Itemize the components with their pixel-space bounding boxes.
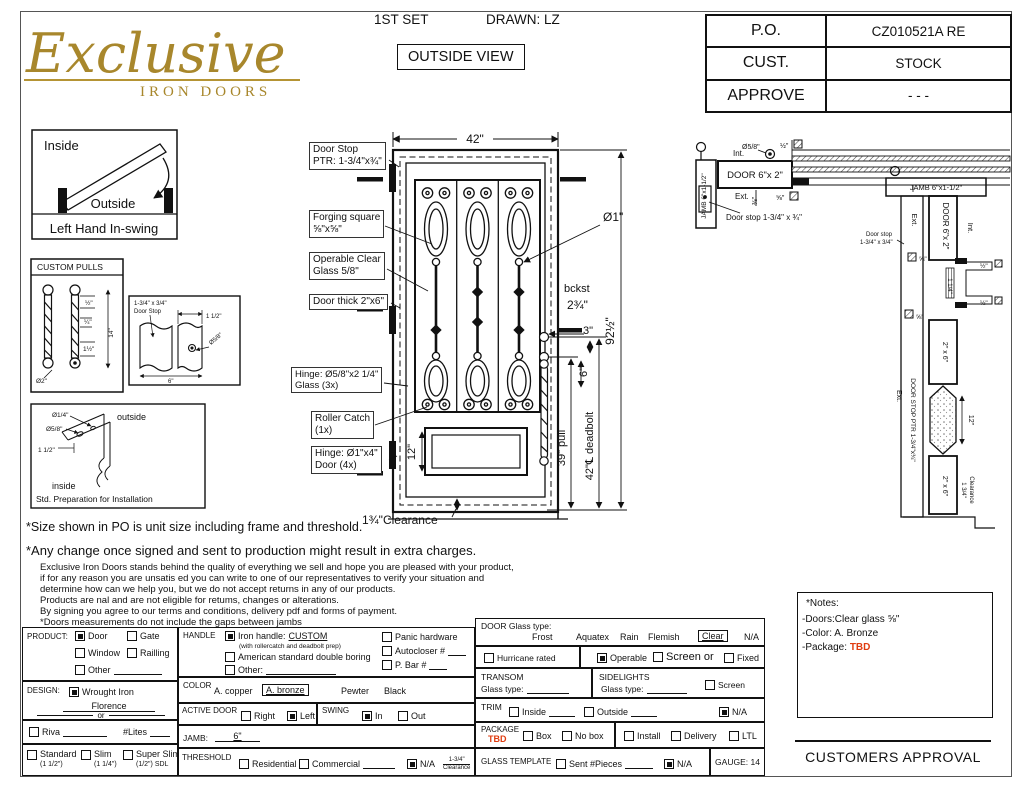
prep-caption: Std. Preparation for Installation (36, 494, 153, 504)
option-label: Out (411, 711, 426, 721)
checkbox-icon[interactable] (664, 759, 674, 769)
checkbox-icon[interactable] (127, 648, 137, 658)
glass-flemish-option[interactable]: Flemish (648, 632, 680, 642)
threshold-note-top: 1-3/4" (443, 757, 470, 765)
color-pewter-option[interactable]: Pewter (341, 686, 369, 696)
dim-dia2: Ø2" (36, 378, 48, 385)
callout-operable-glass: Operable Clear Glass 5/8" (309, 252, 385, 280)
checkbox-slim[interactable]: Slim(1 1/4") (81, 750, 117, 769)
checkbox-swing-out[interactable]: Out (398, 711, 426, 721)
blank-line[interactable] (527, 685, 569, 694)
checkbox-icon[interactable] (29, 727, 39, 737)
option-label: Outside (597, 707, 628, 717)
handle-label: HANDLE (183, 631, 215, 640)
option-label: Frost (532, 632, 553, 642)
sectionv-half1: ½" (980, 262, 988, 270)
option-label: Standard (40, 749, 77, 759)
stop-name-label: Door Stop (134, 309, 162, 315)
option-label: Hurricane rated (497, 653, 556, 663)
sectionv-fe1: ⅝" (919, 256, 927, 263)
po-value: CZ010521A RE (826, 15, 1011, 47)
color-cell: COLOR A. copper A. bronze Pewter Black (178, 677, 475, 703)
jamb-label: JAMB: (183, 733, 208, 743)
checkbox-icon[interactable] (239, 759, 249, 769)
sectionv-fe2: ⅝" (916, 314, 924, 321)
dim-1half: 1½" (83, 345, 95, 353)
option-label: Operable (610, 653, 647, 663)
checkbox-trim-inside[interactable]: Inside (509, 707, 575, 717)
checkbox-autocloser[interactable]: Autocloser # (382, 646, 466, 656)
option-label: Inside (522, 707, 546, 717)
checkbox-riva[interactable]: Riva (29, 727, 107, 737)
blank-line[interactable] (114, 666, 162, 675)
handle-cell: HANDLE Iron handle:CUSTOM (with rollerca… (178, 627, 475, 677)
product-cell: PRODUCT: Door Gate Window Railling Other (22, 627, 178, 681)
checkbox-icon[interactable] (81, 750, 91, 760)
sectionv-stop1: Door stop (866, 232, 893, 238)
checkbox-icon[interactable] (719, 707, 729, 717)
checkbox-install[interactable]: Install (624, 731, 661, 741)
custom-pulls-title: CUSTOM PULLS (37, 262, 103, 272)
option-label: Window (88, 648, 120, 658)
trim-cell: TRIM Inside Outside N/A (475, 698, 765, 722)
checkbox-ltl[interactable]: LTL (729, 731, 757, 741)
notes-title: *Notes: (806, 598, 839, 609)
option-label: Black (384, 686, 406, 696)
disclaimer-small5: By signing you agree to our terms and co… (26, 606, 686, 617)
sectionh-jamb-label: JAMB 6"x1-1/2" (701, 173, 708, 219)
checkbox-icon[interactable] (724, 653, 734, 663)
checkbox-icon[interactable] (382, 632, 392, 642)
disclaimer-small4: Products are nal and are not eligible fo… (26, 595, 686, 606)
checkbox-wrought-iron[interactable]: Wrought Iron (69, 687, 134, 697)
checkbox-icon[interactable] (225, 631, 235, 641)
dim-3: 3" (583, 325, 593, 337)
sidelights-label: SIDELIGHTS (599, 672, 650, 682)
sectionh-door-label: DOOR 6"x 2" (727, 170, 783, 181)
color-black-option[interactable]: Black (384, 686, 406, 696)
option-label: Right (254, 711, 275, 721)
stop-dim3: 6" (168, 379, 173, 385)
option-label: Install (637, 731, 661, 741)
color-copper-option[interactable]: A. copper (214, 686, 253, 696)
checkbox-delivery[interactable]: Delivery (671, 731, 717, 741)
checkbox-icon[interactable] (123, 750, 133, 760)
callout-hinge-door: Hinge: Ø1"x4" Door (4x) (311, 446, 382, 474)
option-label: N/A (420, 759, 435, 769)
callout-door-thick: Door thick 2"x6" (309, 294, 388, 310)
jamb-cell: JAMB: 6" (178, 725, 475, 748)
sidelights-glass-field[interactable]: Glass type: (601, 684, 687, 694)
option-label: Left (300, 711, 315, 721)
operable-cell: Operable Screen or Fixed (580, 646, 765, 668)
checkbox-icon[interactable] (671, 731, 681, 741)
callout-roller-catch: Roller Catch (1x) (311, 411, 374, 439)
pull-dim: 39" pull (556, 430, 568, 466)
prep-dim1: Ø1/4" (52, 412, 69, 419)
blank-line[interactable] (150, 728, 170, 737)
option-label: Glass type: (481, 684, 524, 694)
dim-14: 14" (108, 328, 115, 338)
option-label: Sent #Pieces (569, 759, 622, 769)
sectionv-doorstop-ptr: DOOR STOP PTR 1-3/4"x¾" (909, 378, 916, 462)
sectionv-clr2: Clearance (968, 476, 974, 504)
option-label: A. copper (214, 686, 253, 696)
option-label: Commercial (312, 759, 360, 769)
option-label: Rain (620, 632, 639, 642)
glass-template-label: GLASS TEMPLATE (481, 757, 551, 766)
package-cell: PACKAGE TBD Box No box (475, 722, 615, 748)
disclaimer-small1: Exclusive Iron Doors stands behind the q… (26, 562, 686, 573)
checkbox-door[interactable]: Door (75, 631, 108, 641)
active-door-label: ACTIVE DOOR (182, 706, 237, 715)
option-label: P. Bar # (395, 660, 426, 670)
swing-diagram: Inside Outside Left Hand In-swing (31, 129, 179, 241)
option-label: Clear (702, 631, 724, 641)
checkbox-icon[interactable] (705, 680, 715, 690)
blank-line[interactable] (363, 760, 395, 769)
stop-dim1: 1 1/2" (206, 314, 221, 320)
checkbox-icon[interactable] (398, 711, 408, 721)
outside-view-label: OUTSIDE VIEW (397, 44, 525, 70)
checkbox-gate[interactable]: Gate (127, 631, 160, 641)
checkbox-icon[interactable] (225, 665, 235, 675)
checkbox-icon[interactable] (127, 631, 137, 641)
option-label: Gate (140, 631, 160, 641)
handle-note: (with rollercatch and deadbolt prep) (239, 643, 341, 650)
option-label: Screen (718, 680, 745, 690)
glass-na-option[interactable]: N/A (744, 632, 759, 642)
doorstop-detail-box: 1-3/4" x 3/4" Door Stop 1 1/2" Ø5/8" 6" (128, 295, 241, 386)
sectionh-fe: ⅝" (776, 195, 785, 202)
checkbox-template-na[interactable]: N/A (664, 759, 692, 769)
checkbox-pbar[interactable]: P. Bar # (382, 660, 447, 670)
color-bronze-option-selected[interactable]: A. bronze (262, 684, 309, 696)
door-drawing: 42" (280, 125, 700, 537)
checkbox-icon[interactable] (624, 731, 634, 741)
checkbox-active-left[interactable]: Left (287, 711, 315, 721)
swing-caption: Left Hand In-swing (50, 221, 158, 236)
disclaimer-small3: determine how can we help you, but we do… (26, 584, 686, 595)
prep-outside-label: outside (117, 412, 146, 422)
riva-cell: Riva #Lites (22, 720, 178, 744)
transom-glass-field[interactable]: Glass type: (481, 684, 569, 694)
glass-rain-option[interactable]: Rain (620, 632, 639, 642)
checkbox-icon[interactable] (729, 731, 739, 741)
checkbox-other-product[interactable]: Other (75, 665, 162, 675)
glass-clear-option-selected[interactable]: Clear (698, 630, 728, 642)
bckst-label: bckst (564, 283, 590, 295)
option-label: Screen or (666, 651, 714, 663)
sectionv-2x6-upper: 2" x 6" (941, 342, 948, 363)
delivery-cell: Install Delivery LTL (615, 722, 765, 748)
option-label: LTL (742, 731, 757, 741)
blank-line[interactable] (429, 661, 447, 670)
disclaimer-line1: *Size shown in PO is unit size including… (26, 520, 686, 534)
checkbox-icon[interactable] (382, 646, 392, 656)
threshold-note-bottom: Clearance (443, 765, 470, 772)
active-door-cell: ACTIVE DOOR Right Left (178, 703, 317, 725)
option-label: In (375, 711, 383, 721)
design-value-text: Florence (91, 701, 126, 711)
or-label: or (97, 711, 104, 720)
checkbox-icon[interactable] (299, 759, 309, 769)
sidelights-cell: SIDELIGHTS Glass type: Screen (592, 668, 765, 698)
checkbox-swing-in[interactable]: In (362, 711, 383, 721)
option-label: Super Slim (136, 749, 180, 759)
cust-label: CUST. (706, 47, 826, 79)
checkbox-icon[interactable] (75, 665, 85, 675)
door-width-dim: 42" (466, 132, 484, 146)
lites-field[interactable]: #Lites (123, 727, 170, 737)
blank-line[interactable] (63, 728, 107, 737)
logo: Exclusive IRON DOORS (24, 28, 300, 101)
option-label: Box (536, 731, 552, 741)
sectionh-dia58: Ø5/8" (742, 144, 760, 151)
checkbox-railling[interactable]: Railling (127, 648, 170, 658)
callout-door-stop: Door Stop PTR: 1-3/4"x¾" (309, 142, 386, 170)
sectionv-2x6-lower: 2" x 6" (941, 476, 948, 497)
option-sublabel: (1 1/2") (40, 761, 63, 768)
option-label: Panic hardware (395, 632, 458, 642)
option-label: Other (88, 665, 111, 675)
checkbox-sent-pieces[interactable]: Sent #Pieces (556, 759, 653, 769)
checkbox-screen-or[interactable]: Screen or (653, 651, 714, 663)
notes-package-value: TBD (850, 642, 871, 653)
checkbox-nobox[interactable]: No box (562, 731, 604, 741)
divider-line (109, 715, 165, 716)
prep-dim2: Ø5/8" (46, 426, 63, 433)
option-label: Autocloser # (395, 646, 445, 656)
checkbox-threshold-na[interactable]: N/A (407, 759, 435, 769)
dim-quarter: ¼" (84, 319, 92, 326)
design-label: DESIGN: (27, 686, 60, 695)
prep-dim3: 1 1/2" (38, 447, 55, 454)
checkbox-super-slim[interactable]: Super Slim(1/2") SDL (123, 750, 180, 769)
glass-type-cell: DOOR Glass type: Frost Aquatex Rain Flem… (475, 618, 765, 646)
glass-type-label: DOOR Glass type: (481, 621, 551, 631)
checkbox-icon[interactable] (523, 731, 533, 741)
blank-line[interactable] (266, 666, 336, 675)
dia1-label: Ø1" (603, 210, 623, 224)
sectionv-jamb-label: JAMB 6"x1-1/2" (910, 183, 963, 192)
option-label: Railling (140, 648, 170, 658)
std-prep-box: Ø1/4" Ø5/8" 1 1/2" outside inside Std. P… (30, 403, 206, 509)
callout-hinge-glass: Hinge: Ø5/8"x2 1/4" Glass (3x) (291, 367, 382, 393)
checkbox-american-boring[interactable]: American standard double boring (225, 652, 371, 662)
deadbolt-dim: 42"℄ deadbolt (584, 412, 596, 480)
checkbox-icon[interactable] (584, 707, 594, 717)
option-label: Slim (94, 749, 112, 759)
option-label: N/A (732, 707, 747, 717)
approve-value: - - - (826, 80, 1011, 112)
blank-line[interactable] (625, 760, 653, 769)
option-label: Flemish (648, 632, 680, 642)
package-label: PACKAGE (481, 725, 519, 734)
checkbox-icon[interactable] (556, 759, 566, 769)
glass-aquatex-option[interactable]: Aquatex (576, 632, 609, 642)
option-label: Door (88, 631, 108, 641)
swing-inside-label: Inside (44, 138, 79, 153)
checkbox-icon[interactable] (382, 660, 392, 670)
trim-label: TRIM (481, 702, 502, 712)
option-label: A. bronze (266, 685, 305, 695)
checkbox-standard[interactable]: Standard(1 1/2") (27, 750, 77, 769)
dim-6: 6" (578, 367, 590, 377)
glass-frost-option[interactable]: Frost (532, 632, 553, 642)
swing-outside-label: Outside (91, 196, 136, 211)
checkbox-trim-outside[interactable]: Outside (584, 707, 657, 717)
hurricane-cell: Hurricane rated (475, 646, 580, 668)
option-label: Delivery (684, 731, 717, 741)
checkbox-icon[interactable] (509, 707, 519, 717)
jamb-value-text: 6" (233, 731, 241, 741)
sectionv-stop2: 1-3/4" x 3/4" (860, 240, 893, 246)
design-cell: DESIGN: Wrought Iron Florence or (22, 681, 178, 720)
checkbox-icon[interactable] (75, 648, 85, 658)
panel-dim-12: 12" (406, 444, 418, 460)
option-label: Residential (252, 759, 297, 769)
set-label: 1ST SET (374, 12, 429, 27)
checkbox-box[interactable]: Box (523, 731, 552, 741)
checkbox-icon[interactable] (75, 631, 85, 641)
checkbox-icon[interactable] (562, 731, 572, 741)
sectionv-clr1: 1 3/4" (960, 482, 966, 497)
option-label: Iron handle: (238, 631, 286, 641)
blank-line[interactable] (549, 708, 575, 717)
checkbox-commercial[interactable]: Commercial (299, 759, 395, 769)
option-label: Riva (42, 727, 60, 737)
checkbox-handle-other[interactable]: Other: (225, 665, 336, 675)
checkbox-icon[interactable] (69, 687, 79, 697)
option-label: American standard double boring (238, 652, 371, 662)
customers-approval[interactable]: CUSTOMERS APPROVAL (795, 740, 991, 765)
checkbox-active-right[interactable]: Right (241, 711, 275, 721)
notes-package-line: -Package: TBD (802, 642, 870, 653)
checkbox-icon[interactable] (407, 759, 417, 769)
jamb-value[interactable]: 6" (215, 731, 260, 742)
option-label: #Lites (123, 727, 147, 737)
checkbox-icon[interactable] (484, 653, 494, 663)
checkbox-residential[interactable]: Residential (239, 759, 297, 769)
prep-inside-label: inside (52, 481, 76, 491)
logo-subtitle: IRON DOORS (140, 84, 300, 101)
transom-cell: TRANSOM Glass type: (475, 668, 592, 698)
option-sublabel: (1 1/4") (94, 761, 117, 768)
notes-package-label: -Package: (802, 642, 850, 653)
product-label: PRODUCT: (27, 632, 68, 641)
option-label: Other: (238, 665, 263, 675)
option-label: N/A (677, 759, 692, 769)
checkbox-icon[interactable] (597, 653, 607, 663)
threshold-cell: THRESHOLD Residential Commercial N/A 1-3… (178, 748, 475, 776)
or-divider: or (37, 711, 165, 720)
checkbox-icon[interactable] (241, 711, 251, 721)
sectionv-int: Int. (966, 223, 975, 233)
checkbox-operable[interactable]: Operable (597, 653, 647, 663)
checkbox-icon[interactable] (653, 652, 663, 662)
divider-line (37, 715, 93, 716)
gauge-value: GAUGE: 14 (715, 757, 760, 767)
checkbox-icon[interactable] (287, 711, 297, 721)
logo-script: Exclusive (24, 28, 300, 81)
option-label: Wrought Iron (82, 687, 134, 697)
sectionv-12: 12" (967, 415, 974, 426)
sectionv-ext2: Ext. (895, 390, 902, 402)
sectionh-te: ⅜" (752, 196, 759, 205)
sectionv-door-label: DOOR 6"x 2" (941, 202, 950, 249)
notes-box: *Notes: -Doors:Clear glass ⅝" -Color: A.… (797, 592, 993, 718)
option-label: Glass type: (601, 684, 644, 694)
blank-line[interactable] (647, 685, 687, 694)
disclaimer-small2: if for any reason you are unsatis ed you… (26, 573, 686, 584)
checkbox-icon[interactable] (362, 711, 372, 721)
cust-value: STOCK (826, 47, 1011, 79)
sectionv-ext1: Ext. (910, 214, 919, 227)
disclaimer-line2: *Any change once signed and sent to prod… (26, 543, 686, 558)
checkbox-panic[interactable]: Panic hardware (382, 632, 458, 642)
disclaimer: *Size shown in PO is unit size including… (26, 520, 686, 628)
gauge-cell: GAUGE: 14 (710, 748, 765, 776)
checkbox-fixed[interactable]: Fixed (724, 653, 759, 663)
option-label: Pewter (341, 686, 369, 696)
swing-label: SWING (322, 706, 349, 715)
checkbox-iron-handle[interactable]: Iron handle:CUSTOM (225, 631, 327, 641)
approve-label: APPROVE (706, 80, 826, 112)
sectionh-half: ½" (780, 142, 789, 150)
checkbox-sidelights-screen[interactable]: Screen (705, 680, 745, 690)
bckst-dim: 2¾" (567, 298, 588, 312)
drawn-label: DRAWN: LZ (486, 12, 560, 27)
option-label: Fixed (737, 653, 759, 663)
sectionv-oq: 1 1/4" (946, 278, 952, 293)
blank-line[interactable] (631, 708, 657, 717)
glass-template-cell: GLASS TEMPLATE Sent #Pieces N/A (475, 748, 710, 776)
color-label: COLOR (183, 681, 211, 690)
jamb-section-vertical: JAMB 6"x1-1/2" Ext. DOOR 6"x 2" Int. Doo… (855, 140, 1020, 545)
swing-cell: SWING In Out (317, 703, 475, 725)
transom-label: TRANSOM (481, 672, 524, 682)
notes-line1: -Doors:Clear glass ⅝" (802, 614, 899, 625)
door-height-dim: 92½" (603, 317, 617, 345)
sectionh-stop-label: Door stop 1-3/4" x ¾" (726, 213, 802, 222)
option-sublabel: (1/2") SDL (136, 761, 168, 768)
package-tbd-value: TBD (488, 734, 507, 744)
stop-size-label: 1-3/4" x 3/4" (134, 301, 167, 307)
custom-pulls-box: CUSTOM PULLS ½" ¼" 1½" 14" Ø2" (30, 258, 124, 393)
checkbox-window[interactable]: Window (75, 648, 120, 658)
checkbox-trim-na[interactable]: N/A (719, 707, 747, 717)
handle-custom-value: CUSTOM (289, 631, 328, 641)
po-table: P.O. CZ010521A RE CUST. STOCK APPROVE - … (705, 14, 1012, 113)
stop-dim2: Ø5/8" (208, 332, 223, 346)
checkbox-hurricane[interactable]: Hurricane rated (484, 653, 556, 663)
dim-half: ½" (85, 299, 93, 307)
threshold-label: THRESHOLD (182, 753, 231, 762)
sectionh-ext-label: Ext. (735, 192, 749, 201)
option-label: N/A (744, 632, 759, 642)
option-label: No box (575, 731, 604, 741)
po-label: P.O. (706, 15, 826, 47)
callout-forging-square: Forging square ⅝"x⅝" (309, 210, 384, 238)
threshold-note: 1-3/4"Clearance (443, 757, 470, 771)
blank-line[interactable] (448, 647, 466, 656)
notes-line2: -Color: A. Bronze (802, 628, 878, 639)
frame-style-cell: Standard(1 1/2") Slim(1 1/4") Super Slim… (22, 744, 178, 776)
checkbox-icon[interactable] (225, 652, 235, 662)
checkbox-icon[interactable] (27, 750, 37, 760)
option-label: Aquatex (576, 632, 609, 642)
